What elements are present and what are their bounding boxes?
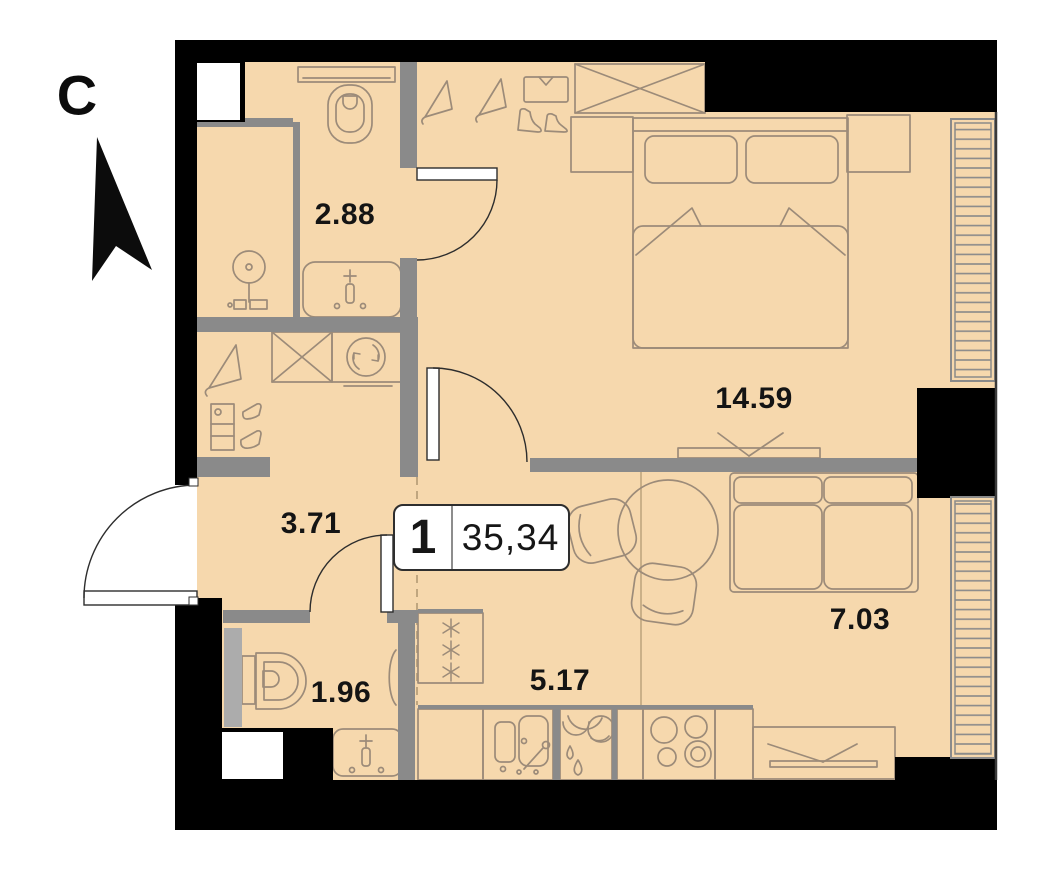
north-label: С [57, 63, 97, 128]
shaft-bottom-left [222, 732, 283, 779]
room-area-living: 7.03 [830, 603, 890, 637]
window-hatch-icon [951, 119, 995, 381]
unit-badge: 1 35,34 [393, 504, 570, 571]
room-area-bathroom-top: 2.88 [315, 198, 375, 232]
floorplan-page: С 2.88 14.59 3.71 1.96 5.17 7.03 1 35,34 [0, 0, 1043, 896]
room-area-hallway: 3.71 [281, 507, 341, 541]
north-arrow-icon [92, 137, 152, 281]
window-hatch-icon [951, 497, 995, 758]
room-area-kitchen: 5.17 [530, 664, 590, 698]
room-area-bedroom: 14.59 [715, 382, 793, 416]
floor [197, 62, 997, 782]
floorplan-drawing [0, 0, 1043, 896]
unit-total-area: 35,34 [453, 506, 568, 569]
shaft-top-left [197, 63, 240, 120]
unit-rooms-count: 1 [395, 506, 453, 569]
room-area-bathroom-bottom: 1.96 [311, 676, 371, 710]
entrance-door [84, 478, 198, 605]
